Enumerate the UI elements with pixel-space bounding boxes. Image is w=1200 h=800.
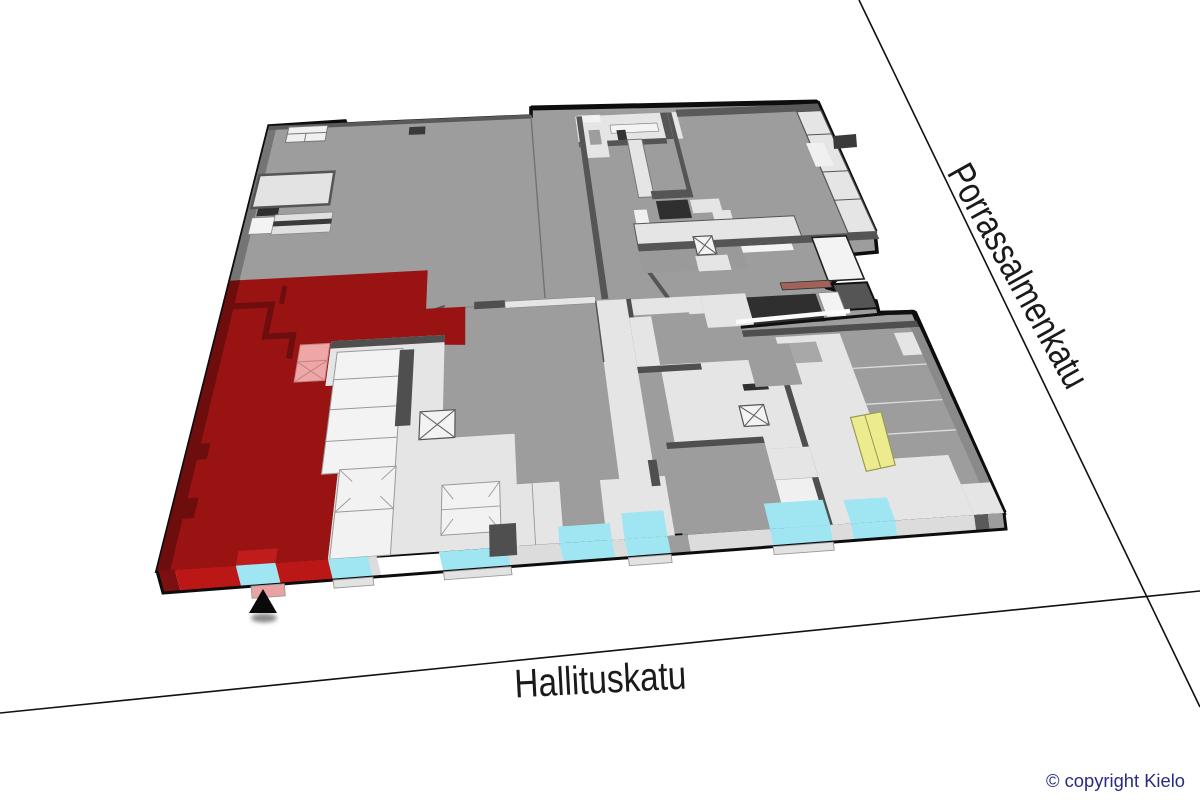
svg-text:Porrassalmenkatu: Porrassalmenkatu <box>939 157 1097 396</box>
svg-text:© copyright Kielo: © copyright Kielo <box>1046 771 1185 791</box>
svg-text:Hallituskatu: Hallituskatu <box>513 654 687 707</box>
